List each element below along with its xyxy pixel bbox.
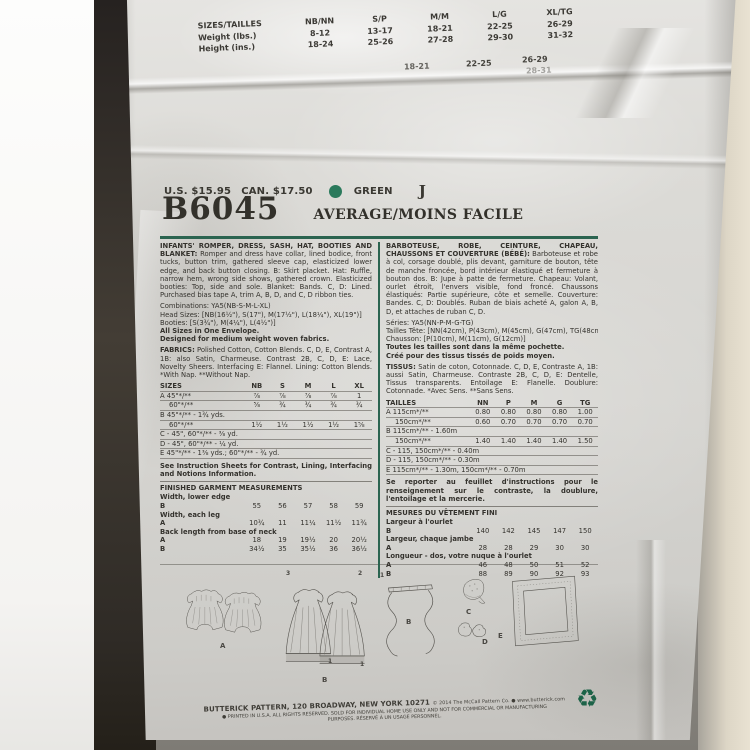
size-fragment: 28-31: [526, 66, 552, 76]
all-sizes-line-fr: Toutes les tailles sont dans la même poc…: [386, 343, 598, 351]
table-cell: 48: [496, 561, 522, 570]
piece-number: 2: [358, 570, 362, 577]
yardage-header-cols: NBSMLXL: [244, 382, 372, 391]
table-cell: 55: [244, 502, 270, 511]
size-fragment: 26-29: [522, 55, 548, 65]
garment-description-fr: BARBOTEUSE, ROBE, CEINTURE, CHAPEAU, CHA…: [386, 242, 598, 316]
view-label-sash: B: [406, 618, 411, 626]
table-cell: 51: [547, 561, 573, 570]
finished-row: Largeur, chaque jambe: [386, 535, 598, 544]
table-cell: 19: [270, 536, 296, 545]
table-cell: 0.60: [470, 418, 496, 427]
finished-row: B34½3535½3636½: [160, 545, 372, 554]
table-cell: ¾: [321, 401, 347, 410]
table-cell: ¾: [295, 401, 321, 410]
fabrics-paragraph-en: FABRICS: Polished Cotton, Cotton Blends.…: [160, 346, 372, 379]
view-label-blanket: E: [498, 632, 503, 640]
yardage-row-label: E 45"*/** - 1⅜ yds.; 60"*/** - ¾ yd.: [160, 449, 372, 458]
table-cell: ¾: [270, 401, 296, 410]
piece-number: 1: [360, 661, 364, 668]
pattern-envelope-back: SIZES/TAILLES NB/NNS/PM/ML/GXL/TG Weight…: [104, 0, 736, 740]
yardage-row: 60"*/**1½1½1½1½1⅝: [160, 421, 372, 431]
table-cell: ⅞: [270, 392, 296, 401]
yardage-header-en: SIZES NBSMLXL: [160, 382, 372, 392]
table-cell: 1½: [244, 421, 270, 430]
finished-measurements-en: FINISHED GARMENT MEASUREMENTS Width, low…: [160, 481, 372, 553]
instruction-note-en: See Instruction Sheets for Contrast, Lin…: [160, 462, 372, 478]
table-cell: 18: [244, 536, 270, 545]
yardage-row-label: A 115cm*/**: [386, 408, 470, 417]
yardage-row-label: A 45"*/**: [160, 392, 244, 401]
table-cell: 1½: [270, 421, 296, 430]
description-body-en: Romper and dress have collar, lined bodi…: [160, 250, 372, 299]
table-cell: 35½: [295, 545, 321, 554]
dress-drawing: [280, 576, 372, 676]
finished-row-label: Width, lower edge: [160, 493, 372, 502]
finished-row-label: Width, each leg: [160, 511, 372, 520]
finished-row-values: 5556575859: [244, 502, 372, 511]
yardage-row-label: B 115cm*/** - 1.60m: [386, 427, 598, 436]
designed-line-fr: Créé pour des tissus tissés de poids moy…: [386, 352, 598, 360]
finished-measurements-fr: MESURES DU VÊTEMENT FINI Largeur à l'our…: [386, 506, 598, 578]
fabrics-paragraph-fr: TISSUS: Satin de coton, Cotonnade. C, D,…: [386, 363, 598, 396]
instruction-note-fr: Se reporter au feuillet d'instructions p…: [386, 478, 598, 503]
table-cell: 0.80: [470, 408, 496, 417]
table-cell: 20½: [346, 536, 372, 545]
yardage-row-label: D - 115, 150cm*/** - 0.30m: [386, 456, 598, 465]
table-cell: 1.40: [470, 437, 496, 446]
table-cell: 1.40: [521, 437, 547, 446]
finished-row-values: 2828293030: [470, 544, 598, 553]
yardage-row-label: 60"*/**: [160, 421, 244, 430]
table-cell: 145: [521, 527, 547, 536]
size-fragment: 22-25: [466, 59, 492, 69]
table-cell: G: [547, 399, 573, 408]
blanket-drawing: [507, 574, 583, 648]
yardage-table-fr: TAILLES NNPMGTG A 115cm*/**0.800.800.800…: [386, 399, 598, 476]
table-cell: 28: [470, 544, 496, 553]
table-cell: 1½: [295, 421, 321, 430]
yardage-row-label: B 45"*/** - 1¾ yds.: [160, 411, 372, 420]
table-cell: ⅝: [244, 401, 270, 410]
finished-row-label: B: [386, 527, 470, 536]
table-cell: M: [295, 382, 321, 391]
finished-row: A10¾1111¼11½11¾: [160, 519, 372, 528]
table-cell: 25-26: [350, 35, 410, 49]
finished-heading-fr: MESURES DU VÊTEMENT FINI: [386, 506, 598, 518]
table-cell: 0.80: [547, 408, 573, 417]
table-cell: 1½: [321, 421, 347, 430]
finished-row: A181919½2020½: [160, 536, 372, 545]
yardage-row: E 45"*/** - 1⅜ yds.; 60"*/** - ¾ yd.: [160, 449, 372, 459]
view-label-booties: D: [482, 638, 488, 646]
table-cell: 1⅝: [346, 421, 372, 430]
finished-row: Width, lower edge: [160, 493, 372, 502]
table-cell: 1: [346, 392, 372, 401]
combinations-line: Combinations: YA5(NB-S-M-L-XL): [160, 302, 372, 310]
view-label-romper: A: [220, 642, 225, 650]
yardage-row-label: 60"*/**: [160, 401, 244, 410]
table-cell: ⅞: [244, 392, 270, 401]
finished-row: Longueur - dos, votre nuque à l'ourlet: [386, 552, 598, 561]
garment-line-drawings: A 3 2 1 1 B: [160, 574, 705, 692]
table-cell: 0.70: [547, 418, 573, 427]
table-cell: TG: [572, 399, 598, 408]
pattern-number: B6045: [162, 191, 279, 227]
head-sizes-line: Head Sizes: [NB(16½"), S(17"), M(17½"), …: [160, 311, 372, 319]
table-cell: 11½: [321, 519, 347, 528]
description-columns: INFANTS' ROMPER, DRESS, SASH, HAT, BOOTI…: [160, 242, 600, 578]
recycle-icon: ♻: [576, 686, 598, 712]
table-cell: 0.70: [572, 418, 598, 427]
table-cell: 30: [547, 544, 573, 553]
finished-row-label: B: [160, 545, 244, 554]
designed-line: Designed for medium weight woven fabrics…: [160, 335, 372, 343]
table-cell: NB: [244, 382, 270, 391]
french-column: BARBOTEUSE, ROBE, CEINTURE, CHAPEAU, CHA…: [386, 242, 598, 578]
all-sizes-line: All Sizes in One Envelope.: [160, 327, 372, 335]
yardage-row: B 115cm*/** - 1.60m: [386, 427, 598, 437]
table-cell: 34½: [244, 545, 270, 554]
fabrics-body-fr: Satin de coton, Cotonnade. C, D, E, Cont…: [386, 363, 598, 396]
table-cell: 46: [470, 561, 496, 570]
yardage-row-values: 0.800.800.800.801.00: [470, 408, 598, 417]
view-label-hat: C: [466, 608, 471, 616]
table-cell: 28: [496, 544, 522, 553]
column-divider: [378, 242, 380, 578]
finished-row-values: 181919½2020½: [244, 536, 372, 545]
table-cell: 1.50: [572, 437, 598, 446]
table-cell: S: [270, 382, 296, 391]
table-cell: 20: [321, 536, 347, 545]
table-cell: 142: [496, 527, 522, 536]
finished-row: B5556575859: [160, 502, 372, 511]
booties-sizes-line: Booties: [S(3¾"), M(4¼"), L(4½")]: [160, 319, 372, 327]
table-cell: 18-24: [290, 38, 350, 52]
title-row: B6045 AVERAGE/MOINS FACILE: [162, 191, 523, 227]
table-cell: 31-32: [530, 28, 590, 42]
series-line: Séries: YA5(NN-P-M-G-TG): [386, 319, 598, 327]
finished-row-label: A: [160, 536, 244, 545]
paper-crease: [114, 144, 746, 169]
table-cell: 150: [572, 527, 598, 536]
backdrop-white: [0, 0, 96, 750]
green-rule: [160, 236, 598, 239]
table-cell: 30: [572, 544, 598, 553]
table-cell: 11¾: [346, 519, 372, 528]
yardage-row-label: D - 45", 60"*/** - ¼ yd.: [160, 440, 372, 449]
table-cell: 57: [295, 502, 321, 511]
yardage-header-cols: NNPMGTG: [470, 399, 598, 408]
table-cell: 0.80: [496, 408, 522, 417]
table-cell: L: [321, 382, 347, 391]
table-cell: 35: [270, 545, 296, 554]
yardage-header-label: SIZES: [160, 382, 244, 391]
finished-row: B140142145147150: [386, 527, 598, 536]
romper-drawing: [185, 584, 265, 642]
finished-row-label: Back length from base of neck: [160, 528, 372, 537]
yardage-row: 60"*/**⅝¾¾¾¾: [160, 401, 372, 411]
yardage-row: D - 115, 150cm*/** - 0.30m: [386, 456, 598, 466]
piece-number: 3: [286, 570, 290, 577]
table-cell: 1.40: [547, 437, 573, 446]
table-cell: ¾: [346, 401, 372, 410]
table-cell: 36½: [346, 545, 372, 554]
piece-number: 1: [328, 658, 332, 665]
table-cell: ⅞: [321, 392, 347, 401]
finished-heading-en: FINISHED GARMENT MEASUREMENTS: [160, 481, 372, 493]
finished-row: Back length from base of neck: [160, 528, 372, 537]
table-cell: 1.40: [496, 437, 522, 446]
yardage-row-values: ⅝¾¾¾¾: [244, 401, 372, 410]
yardage-header-label: TAILLES: [386, 399, 470, 408]
table-cell: P: [496, 399, 522, 408]
description-body-fr: Barboteuse et robe à col, corsage doublé…: [386, 250, 598, 315]
finished-row-label: Longueur - dos, votre nuque à l'ourlet: [386, 552, 598, 561]
table-cell: 11: [270, 519, 296, 528]
table-cell: 11¼: [295, 519, 321, 528]
finished-row-values: 4648505152: [470, 561, 598, 570]
finished-row: Largeur à l'ourlet: [386, 518, 598, 527]
yardage-row: 150cm*/**1.401.401.401.401.50: [386, 437, 598, 447]
hat-drawing: [460, 576, 488, 608]
finished-row: A4648505152: [386, 561, 598, 570]
finished-row-label: Largeur à l'ourlet: [386, 518, 598, 527]
table-cell: 58: [321, 502, 347, 511]
finished-row-values: 10¾1111¼11½11¾: [244, 519, 372, 528]
yardage-row: 150cm*/**0.600.700.700.700.70: [386, 418, 598, 428]
table-cell: 52: [572, 561, 598, 570]
yardage-header-fr: TAILLES NNPMGTG: [386, 399, 598, 409]
table-cell: XL: [346, 382, 372, 391]
yardage-row-values: ⅞⅞⅞⅞1: [244, 392, 372, 401]
combinations-block-en: Combinations: YA5(NB-S-M-L-XL) Head Size…: [160, 302, 372, 343]
table-cell: M: [521, 399, 547, 408]
finished-row-label: A: [386, 561, 470, 570]
finished-row: Width, each leg: [160, 511, 372, 520]
photo-of-pattern-envelope: SIZES/TAILLES NB/NNS/PM/ML/GXL/TG Weight…: [0, 0, 750, 750]
table-cell: ⅞: [295, 392, 321, 401]
table-cell: 1.00: [572, 408, 598, 417]
table-cell: 29: [521, 544, 547, 553]
head-sizes-line-fr: Tailles Tête: [NN(42cm), P(43cm), M(45cm…: [386, 327, 598, 335]
view-label-dress: B: [322, 676, 327, 684]
finished-row-values: 140142145147150: [470, 527, 598, 536]
yardage-row-label: E 115cm*/** - 1.30m, 150cm*/** - 0.70m: [386, 466, 598, 475]
english-column: INFANTS' ROMPER, DRESS, SASH, HAT, BOOTI…: [160, 242, 372, 578]
yardage-row: C - 45", 60"*/** - ⅜ yd.: [160, 430, 372, 440]
yardage-row-values: 0.600.700.700.700.70: [470, 418, 598, 427]
table-cell: 56: [270, 502, 296, 511]
table-cell: 59: [346, 502, 372, 511]
finished-row-label: B: [160, 502, 244, 511]
publisher-footer: BUTTERICK PATTERN, 120 BROADWAY, NEW YOR…: [192, 694, 577, 727]
finished-row: A2828293030: [386, 544, 598, 553]
table-cell: 50: [521, 561, 547, 570]
table-cell: 19½: [295, 536, 321, 545]
finished-row-values: 34½3535½3636½: [244, 545, 372, 554]
yardage-row: E 115cm*/** - 1.30m, 150cm*/** - 0.70m: [386, 466, 598, 476]
difficulty-rating: AVERAGE/MOINS FACILE: [313, 207, 523, 223]
finished-row-label: A: [160, 519, 244, 528]
booties-sizes-line-fr: Chausson: [P(10cm), M(11cm), G(12cm)]: [386, 335, 598, 343]
yardage-row-label: 150cm*/**: [386, 418, 470, 427]
piece-number: 1: [380, 572, 384, 579]
yardage-row: B 45"*/** - 1¾ yds.: [160, 411, 372, 421]
yardage-row-label: 150cm*/**: [386, 437, 470, 446]
finished-row-label: Largeur, chaque jambe: [386, 535, 598, 544]
fabrics-label-fr: TISSUS:: [386, 363, 416, 371]
size-fragment: 18-21: [404, 62, 430, 72]
yardage-row: A 115cm*/**0.800.800.800.801.00: [386, 408, 598, 418]
table-cell: 140: [470, 527, 496, 536]
table-cell: 0.70: [496, 418, 522, 427]
table-cell: 10¾: [244, 519, 270, 528]
garment-description-en: INFANTS' ROMPER, DRESS, SASH, HAT, BOOTI…: [160, 242, 372, 299]
yardage-row-label: C - 45", 60"*/** - ⅜ yd.: [160, 430, 372, 439]
yardage-row: D - 45", 60"*/** - ¼ yd.: [160, 440, 372, 450]
table-cell: 147: [547, 527, 573, 536]
yardage-row: C - 115, 150cm*/** - 0.40m: [386, 447, 598, 457]
yardage-row-values: 1.401.401.401.401.50: [470, 437, 598, 446]
table-cell: NN: [470, 399, 496, 408]
yardage-table-en: SIZES NBSMLXL A 45"*/**⅞⅞⅞⅞1 60"*/**⅝¾¾¾…: [160, 382, 372, 459]
table-cell: 36: [321, 545, 347, 554]
table-cell: 0.80: [521, 408, 547, 417]
size-weight-chart: SIZES/TAILLES NB/NNS/PM/ML/GXL/TG Weight…: [184, 3, 655, 56]
table-cell: 0.70: [521, 418, 547, 427]
yardage-row: A 45"*/**⅞⅞⅞⅞1: [160, 392, 372, 402]
table-cell: 27-28: [410, 33, 470, 47]
combinations-block-fr: Séries: YA5(NN-P-M-G-TG) Tailles Tête: […: [386, 319, 598, 360]
yardage-row-label: C - 115, 150cm*/** - 0.40m: [386, 447, 598, 456]
finished-row-label: A: [386, 544, 470, 553]
table-cell: 29-30: [470, 31, 530, 45]
yardage-row-values: 1½1½1½1½1⅝: [244, 421, 372, 430]
fabrics-label-en: FABRICS:: [160, 346, 195, 354]
